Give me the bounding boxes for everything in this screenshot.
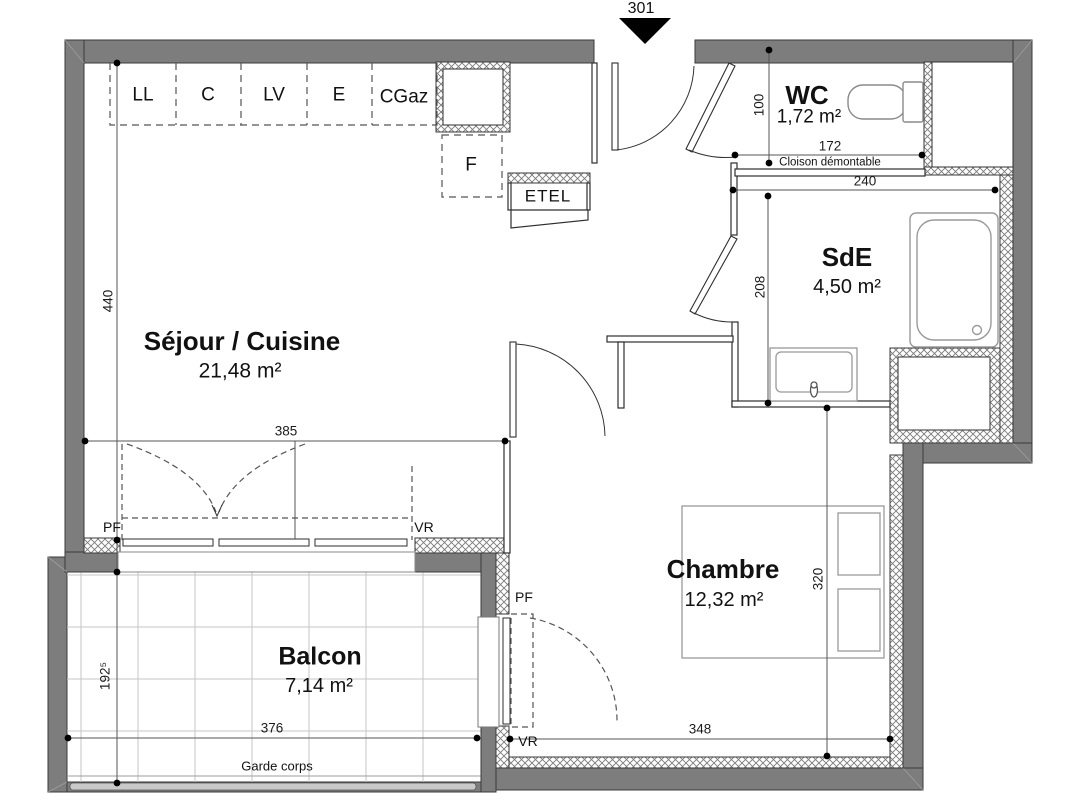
wc-door-swing [689,150,736,158]
room-area-sejour: 21,48 m² [199,361,282,382]
pf-label-chambre: PF [515,590,533,604]
dim-wc-width: 172 [819,139,842,153]
shower-icon [910,213,998,347]
floor-plan: 301 LL C LV E CGaz F ETEL WC 1,72 m² Clo… [0,0,1085,800]
sejour-window-swing [122,444,412,540]
dim-balcon-width: 376 [261,721,284,735]
unit-lv-label: LV [263,86,285,105]
dim-chambre-height: 320 [811,568,825,591]
room-label-balcon: Balcon [278,645,361,670]
room-area-chambre: 12,32 m² [685,590,764,610]
dim-sde-height: 208 [753,276,767,299]
balcony [48,557,481,792]
chambre-door-leaf [510,342,516,437]
chambre-door-swing [516,344,605,436]
dim-sejour-width: 385 [275,424,298,438]
entry-door-swing [616,66,694,150]
sde-door-swing [694,313,734,322]
dim-sde-width: 240 [854,174,877,188]
sde-door-leaf [690,236,737,314]
dim-wc-height: 100 [752,94,766,117]
cloison-demontable-wall [735,169,925,176]
dim-sejour-height: 440 [101,290,115,313]
interior-partitions [504,63,925,553]
chambre-window-sill [478,617,499,727]
pf-label-sejour: PF [103,520,121,534]
etel-label: ETEL [525,188,572,205]
room-area-sde: 4,50 m² [813,277,881,297]
room-area-wc: 1,72 m² [777,108,841,127]
dim-balcon-depth: 192⁵ [98,662,112,690]
unit-c-label: C [201,86,215,105]
vr-label-sejour: VR [414,520,433,534]
entrance-arrow-icon [619,18,671,44]
entry-door-leaf [612,63,618,150]
balcony-tiles [67,572,481,782]
chambre-window-swing [511,614,617,727]
unit-ll-label: LL [132,86,153,105]
guardrail [70,783,476,790]
cloison-label: Cloison démontable [779,157,881,169]
unit-cgaz-label: CGaz [380,88,429,107]
sink-icon [770,348,857,401]
room-label-wc: WC [785,82,828,108]
vr-label-chambre: VR [518,734,537,748]
unit-e-label: E [333,86,346,105]
windows [118,441,617,727]
floor-plan-svg [0,0,1085,800]
toilet-icon [848,82,923,122]
garde-corps-label: Garde corps [241,760,313,773]
room-label-sde: SdE [822,244,873,270]
fridge-label: F [465,156,477,175]
sejour-window-sill [118,552,415,572]
unit-number: 301 [628,1,655,17]
room-area-balcon: 7,14 m² [285,676,353,696]
chambre-window [503,618,510,724]
dim-chambre-width: 348 [689,722,712,736]
room-label-chambre: Chambre [667,556,780,582]
etel-door [511,210,588,228]
room-label-sejour: Séjour / Cuisine [144,328,341,354]
